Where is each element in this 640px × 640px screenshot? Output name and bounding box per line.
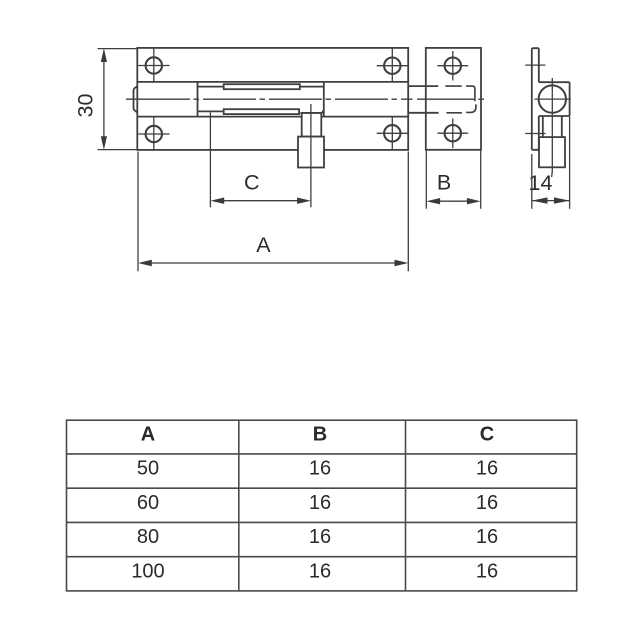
svg-text:B: B	[437, 171, 451, 195]
svg-text:A: A	[141, 424, 155, 446]
svg-text:16: 16	[309, 458, 331, 480]
svg-text:30: 30	[74, 94, 98, 118]
svg-text:16: 16	[476, 526, 498, 548]
svg-text:80: 80	[137, 526, 159, 548]
svg-text:B: B	[313, 424, 327, 446]
svg-text:16: 16	[309, 492, 331, 514]
svg-text:50: 50	[137, 458, 159, 480]
svg-text:16: 16	[309, 560, 331, 582]
svg-text:16: 16	[309, 526, 331, 548]
svg-text:16: 16	[476, 492, 498, 514]
svg-text:60: 60	[137, 492, 159, 514]
svg-text:16: 16	[476, 560, 498, 582]
svg-text:A: A	[256, 233, 271, 257]
svg-text:C: C	[480, 424, 494, 446]
svg-text:16: 16	[476, 458, 498, 480]
svg-text:100: 100	[131, 560, 164, 582]
svg-text:C: C	[244, 171, 260, 195]
svg-text:14: 14	[529, 171, 553, 195]
